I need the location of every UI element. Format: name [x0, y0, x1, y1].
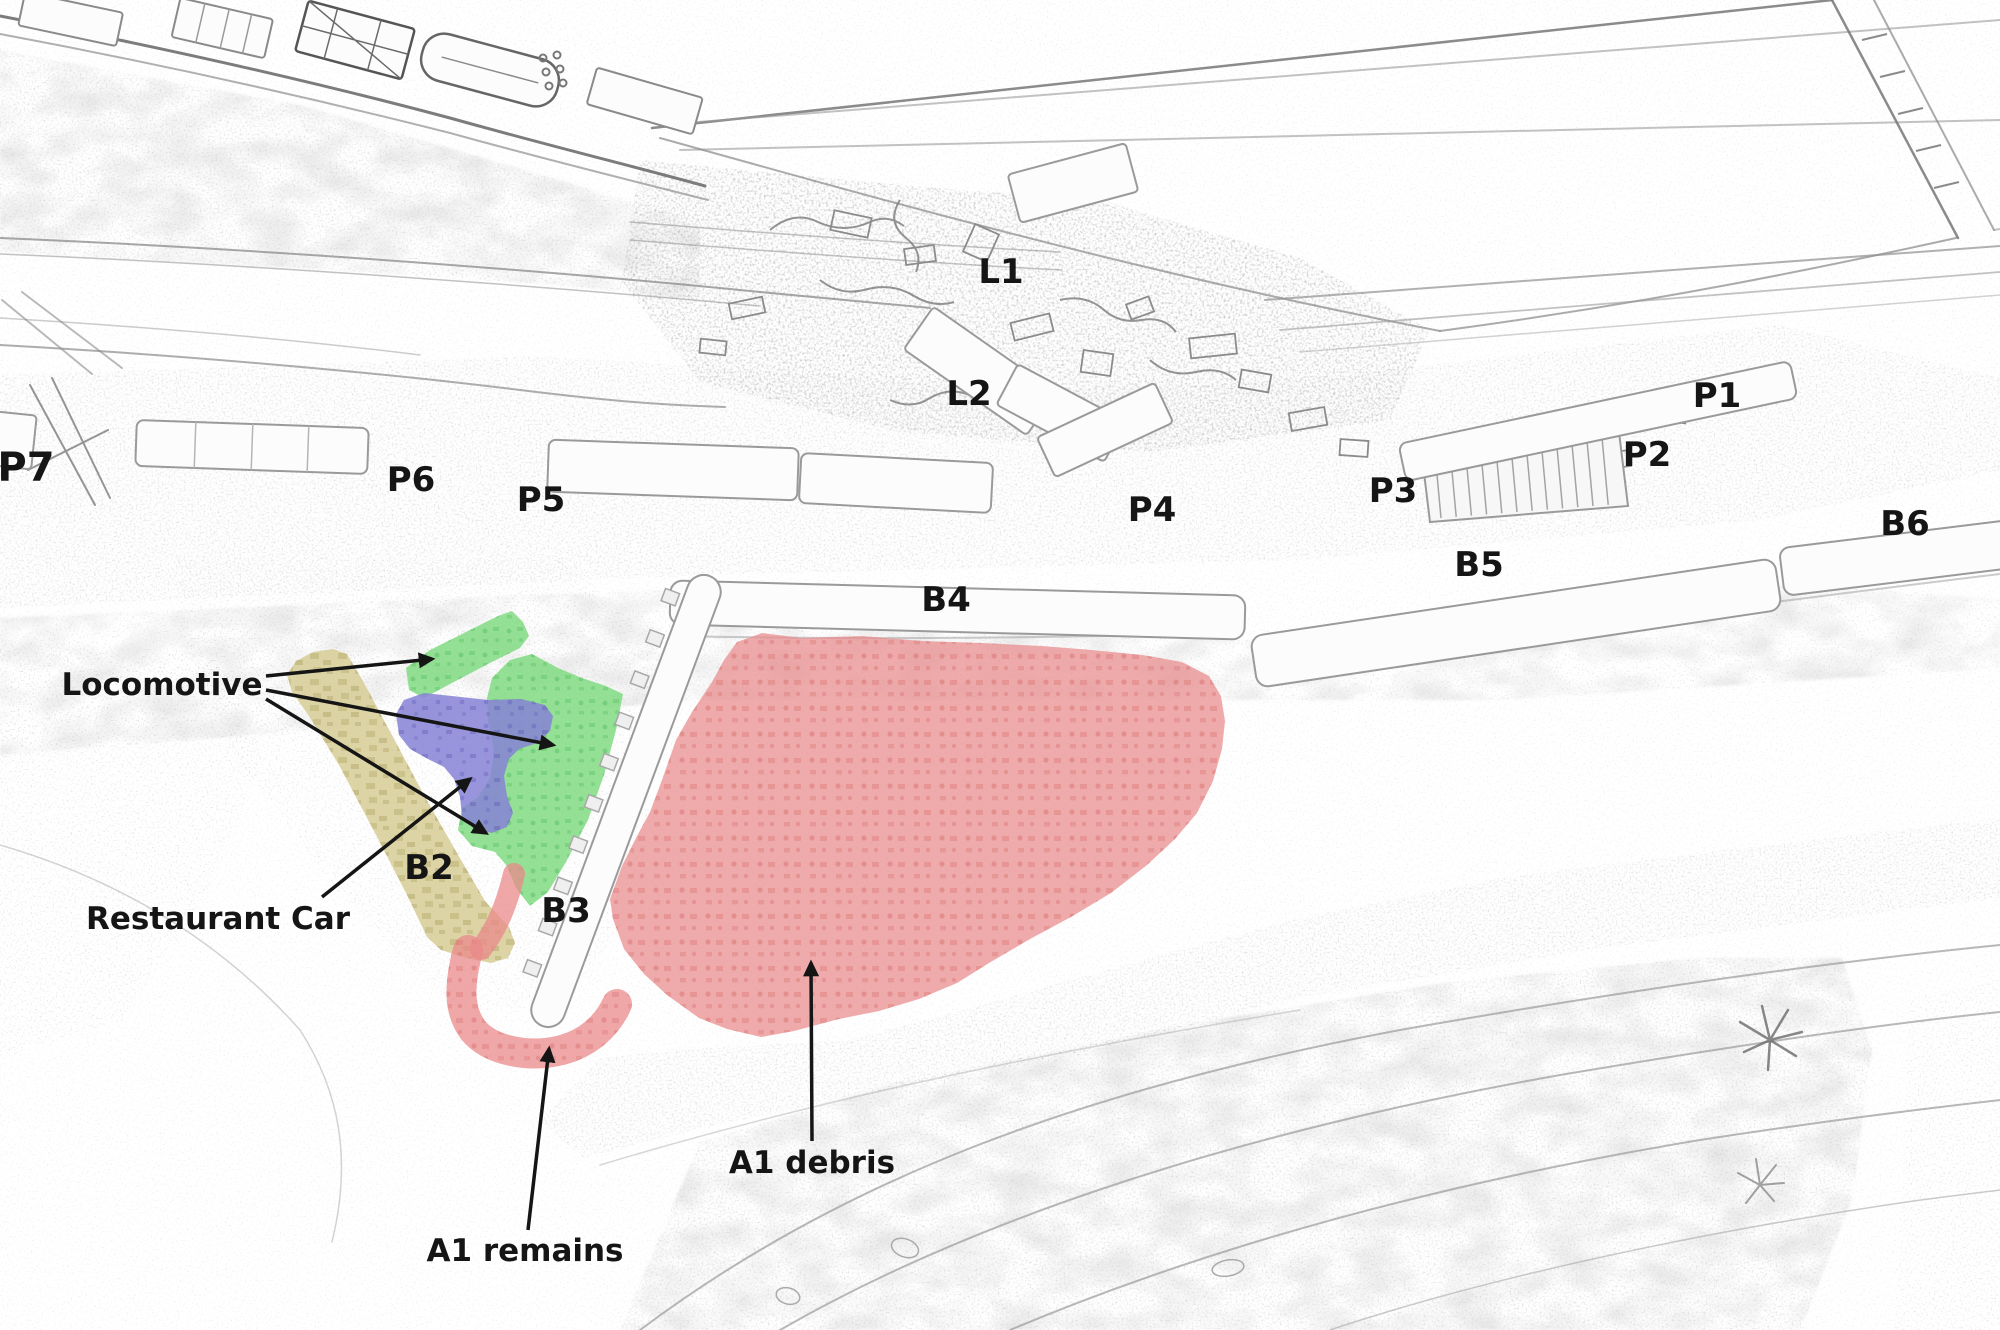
annotation-label-a1-debris: A1 debris — [729, 1145, 895, 1181]
car-label-L1: L1 — [978, 252, 1023, 292]
annotation-label-restaurant-car: Restaurant Car — [86, 901, 351, 937]
car-label-P4: P4 — [1128, 490, 1177, 530]
car-label-P7: P7 — [0, 444, 55, 490]
derailment-sketch-map: P7P6P5L1L2P4P3P2P1B6B5B4B3B2LocomotiveRe… — [0, 0, 2000, 1330]
car-label-B3: B3 — [541, 891, 591, 931]
car-label-B4: B4 — [921, 580, 971, 620]
car-p6-shape — [135, 420, 368, 474]
car-label-P3: P3 — [1369, 471, 1418, 511]
annotation-arrow-a1-debris — [811, 963, 812, 1141]
car-label-P1: P1 — [1693, 376, 1742, 416]
car-label-B5: B5 — [1454, 545, 1504, 585]
car-label-P6: P6 — [387, 460, 436, 500]
car-label-L2: L2 — [946, 374, 991, 414]
car-p5a-shape — [547, 440, 799, 501]
car-label-P2: P2 — [1623, 435, 1672, 475]
sketch-canvas: P7P6P5L1L2P4P3P2P1B6B5B4B3B2LocomotiveRe… — [0, 0, 2000, 1330]
car-label-B6: B6 — [1880, 504, 1930, 544]
car-p5b-shape — [799, 453, 993, 513]
annotation-label-locomotive: Locomotive — [61, 667, 262, 703]
car-label-B2: B2 — [404, 848, 454, 888]
car-label-P5: P5 — [517, 480, 566, 520]
annotation-label-a1-remains: A1 remains — [426, 1233, 623, 1269]
